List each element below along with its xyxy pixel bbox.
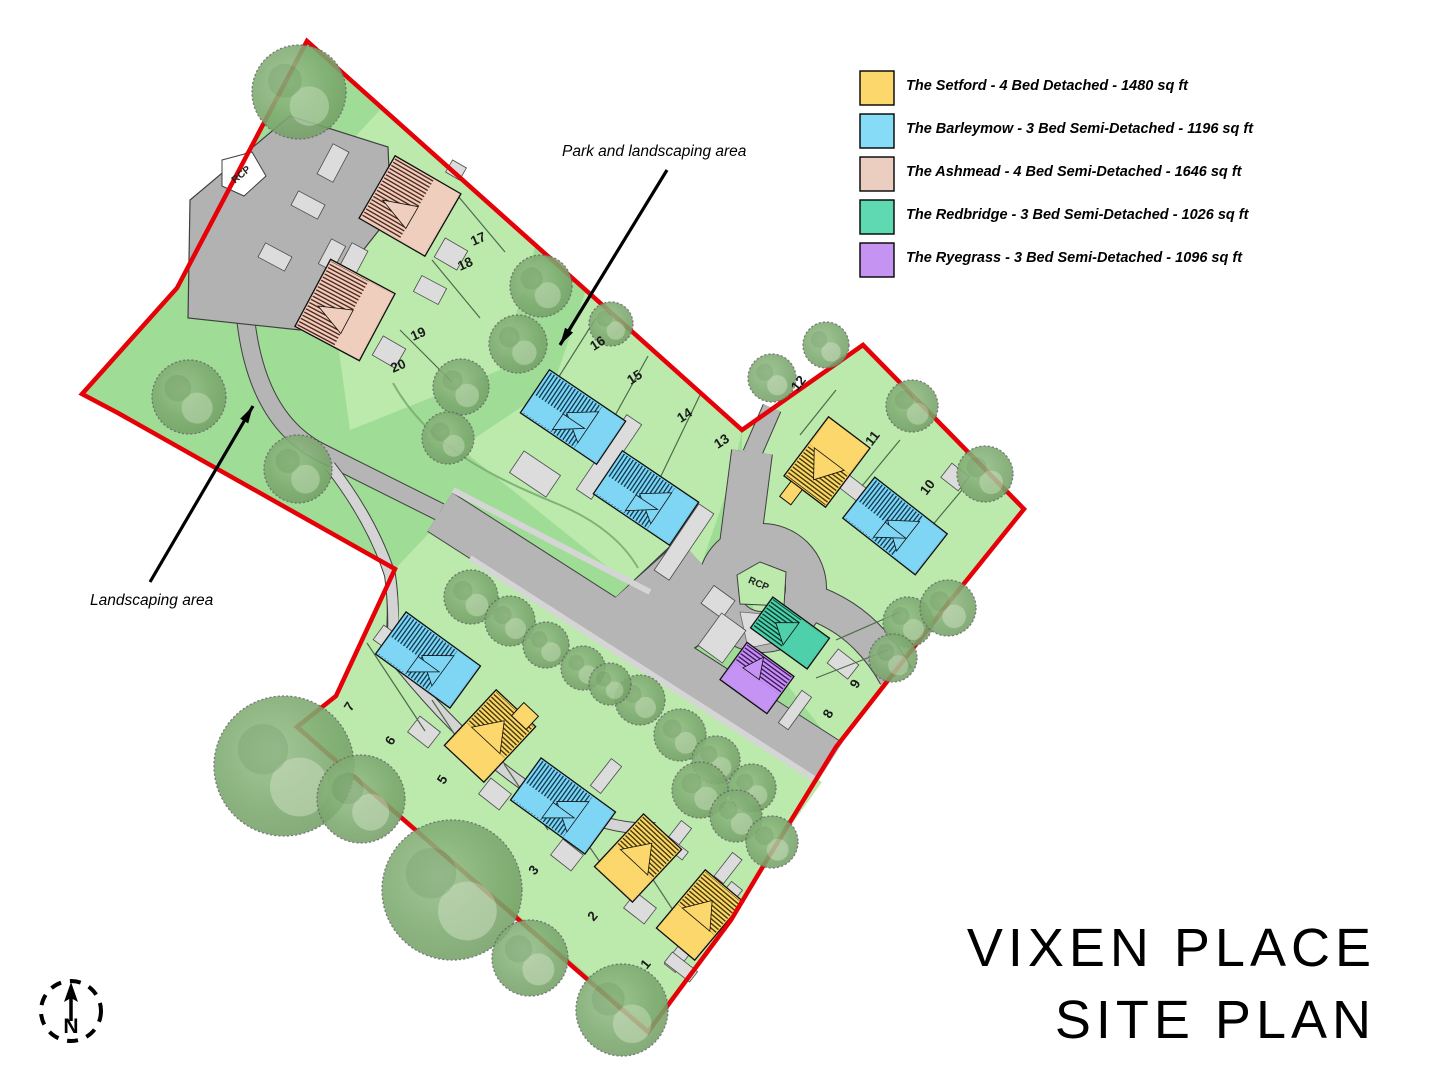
svg-text:The Barleymow - 3 Bed Semi-Det: The Barleymow - 3 Bed Semi-Detached - 11… (906, 121, 1254, 137)
svg-text:N: N (63, 1015, 78, 1038)
svg-text:The Setford - 4 Bed Detached -: The Setford - 4 Bed Detached - 1480 sq f… (906, 78, 1189, 94)
svg-text:Park and landscaping area: Park and landscaping area (562, 143, 747, 160)
svg-text:Landscaping area: Landscaping area (90, 592, 214, 609)
svg-text:The Redbridge - 3 Bed Semi-Det: The Redbridge - 3 Bed Semi-Detached - 10… (906, 207, 1250, 223)
svg-text:The Ryegrass - 3 Bed Semi-Deta: The Ryegrass - 3 Bed Semi-Detached - 109… (906, 250, 1243, 266)
svg-text:The Ashmead - 4 Bed Semi-Detac: The Ashmead - 4 Bed Semi-Detached - 1646… (906, 164, 1243, 180)
svg-text:SITE PLAN: SITE PLAN (1055, 990, 1376, 1050)
svg-text:VIXEN PLACE: VIXEN PLACE (967, 918, 1376, 978)
